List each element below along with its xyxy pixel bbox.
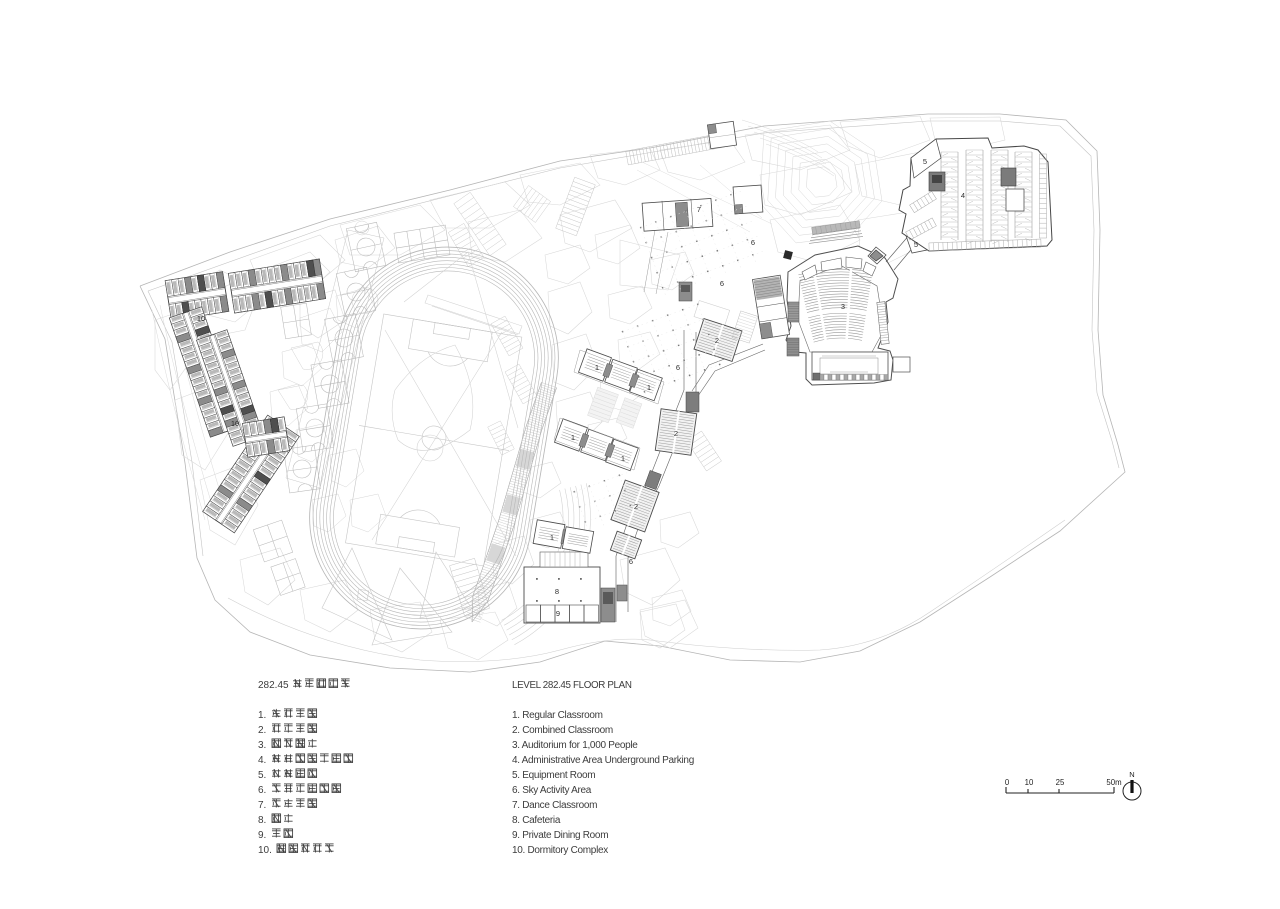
svg-text:9. Private Dining Room: 9. Private Dining Room bbox=[512, 830, 608, 841]
svg-text:10.: 10. bbox=[258, 845, 272, 856]
svg-text:0: 0 bbox=[1005, 778, 1010, 787]
svg-text:4: 4 bbox=[961, 191, 965, 200]
svg-text:2. Combined Classroom: 2. Combined Classroom bbox=[512, 725, 613, 736]
svg-text:1: 1 bbox=[647, 383, 651, 392]
svg-text:8.: 8. bbox=[258, 815, 266, 826]
svg-text:50m: 50m bbox=[1106, 778, 1121, 787]
svg-text:6: 6 bbox=[676, 363, 680, 372]
svg-text:5. Equipment Room: 5. Equipment Room bbox=[512, 770, 595, 781]
svg-text:10: 10 bbox=[1025, 778, 1034, 787]
svg-text:3: 3 bbox=[841, 302, 845, 311]
svg-text:5: 5 bbox=[923, 157, 927, 166]
svg-text:10. Dormitory Complex: 10. Dormitory Complex bbox=[512, 845, 608, 856]
svg-text:2.: 2. bbox=[258, 725, 266, 736]
svg-text:4.: 4. bbox=[258, 755, 266, 766]
svg-text:1. Regular Classroom: 1. Regular Classroom bbox=[512, 710, 603, 721]
svg-text:1: 1 bbox=[571, 433, 575, 442]
svg-text:7: 7 bbox=[697, 205, 701, 214]
svg-text:7.: 7. bbox=[258, 800, 266, 811]
svg-text:25: 25 bbox=[1056, 778, 1065, 787]
svg-text:6: 6 bbox=[751, 238, 755, 247]
svg-text:10: 10 bbox=[197, 314, 205, 323]
svg-text:4. Administrative Area Undergr: 4. Administrative Area Underground Parki… bbox=[512, 755, 694, 766]
svg-text:1: 1 bbox=[550, 533, 554, 542]
svg-text:2: 2 bbox=[715, 336, 719, 345]
svg-text:6: 6 bbox=[629, 557, 633, 566]
svg-text:8: 8 bbox=[555, 587, 559, 596]
svg-text:9: 9 bbox=[556, 609, 560, 618]
svg-text:5: 5 bbox=[914, 240, 918, 249]
svg-text:6. Sky Activity Area: 6. Sky Activity Area bbox=[512, 785, 592, 796]
svg-text:N: N bbox=[1129, 770, 1134, 779]
svg-text:1: 1 bbox=[621, 454, 625, 463]
svg-text:5.: 5. bbox=[258, 770, 266, 781]
svg-text:7. Dance Classroom: 7. Dance Classroom bbox=[512, 800, 597, 811]
svg-text:1: 1 bbox=[595, 363, 599, 372]
svg-text:LEVEL 282.45 FLOOR PLAN: LEVEL 282.45 FLOOR PLAN bbox=[512, 680, 632, 691]
svg-text:10: 10 bbox=[231, 419, 239, 428]
svg-text:6.: 6. bbox=[258, 785, 266, 796]
svg-text:3.: 3. bbox=[258, 740, 266, 751]
svg-text:1.: 1. bbox=[258, 710, 266, 721]
svg-text:2: 2 bbox=[674, 429, 678, 438]
svg-text:2: 2 bbox=[634, 502, 638, 511]
svg-text:6: 6 bbox=[720, 279, 724, 288]
svg-text:9.: 9. bbox=[258, 830, 266, 841]
svg-text:282.45: 282.45 bbox=[258, 680, 289, 691]
svg-text:8. Cafeteria: 8. Cafeteria bbox=[512, 815, 561, 826]
svg-text:3. Auditorium for 1,000 People: 3. Auditorium for 1,000 People bbox=[512, 740, 638, 751]
